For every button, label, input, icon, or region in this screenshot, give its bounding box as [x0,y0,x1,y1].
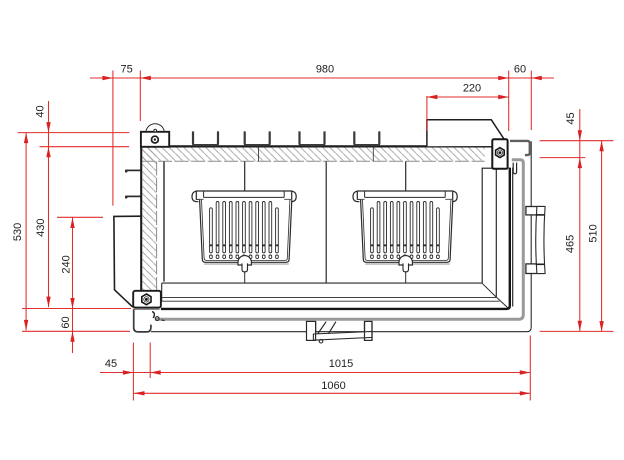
svg-text:980: 980 [316,63,334,75]
svg-text:45: 45 [565,112,577,124]
svg-text:1060: 1060 [321,380,345,392]
svg-text:1015: 1015 [329,358,353,370]
svg-text:75: 75 [120,63,132,75]
svg-text:60: 60 [514,63,526,75]
svg-text:510: 510 [588,224,600,242]
svg-text:45: 45 [105,358,117,370]
svg-text:240: 240 [61,255,73,273]
svg-text:465: 465 [565,235,577,253]
svg-text:220: 220 [463,82,481,94]
svg-text:40: 40 [35,105,47,117]
svg-text:60: 60 [60,316,72,328]
svg-text:530: 530 [12,223,24,241]
svg-text:430: 430 [35,219,47,237]
